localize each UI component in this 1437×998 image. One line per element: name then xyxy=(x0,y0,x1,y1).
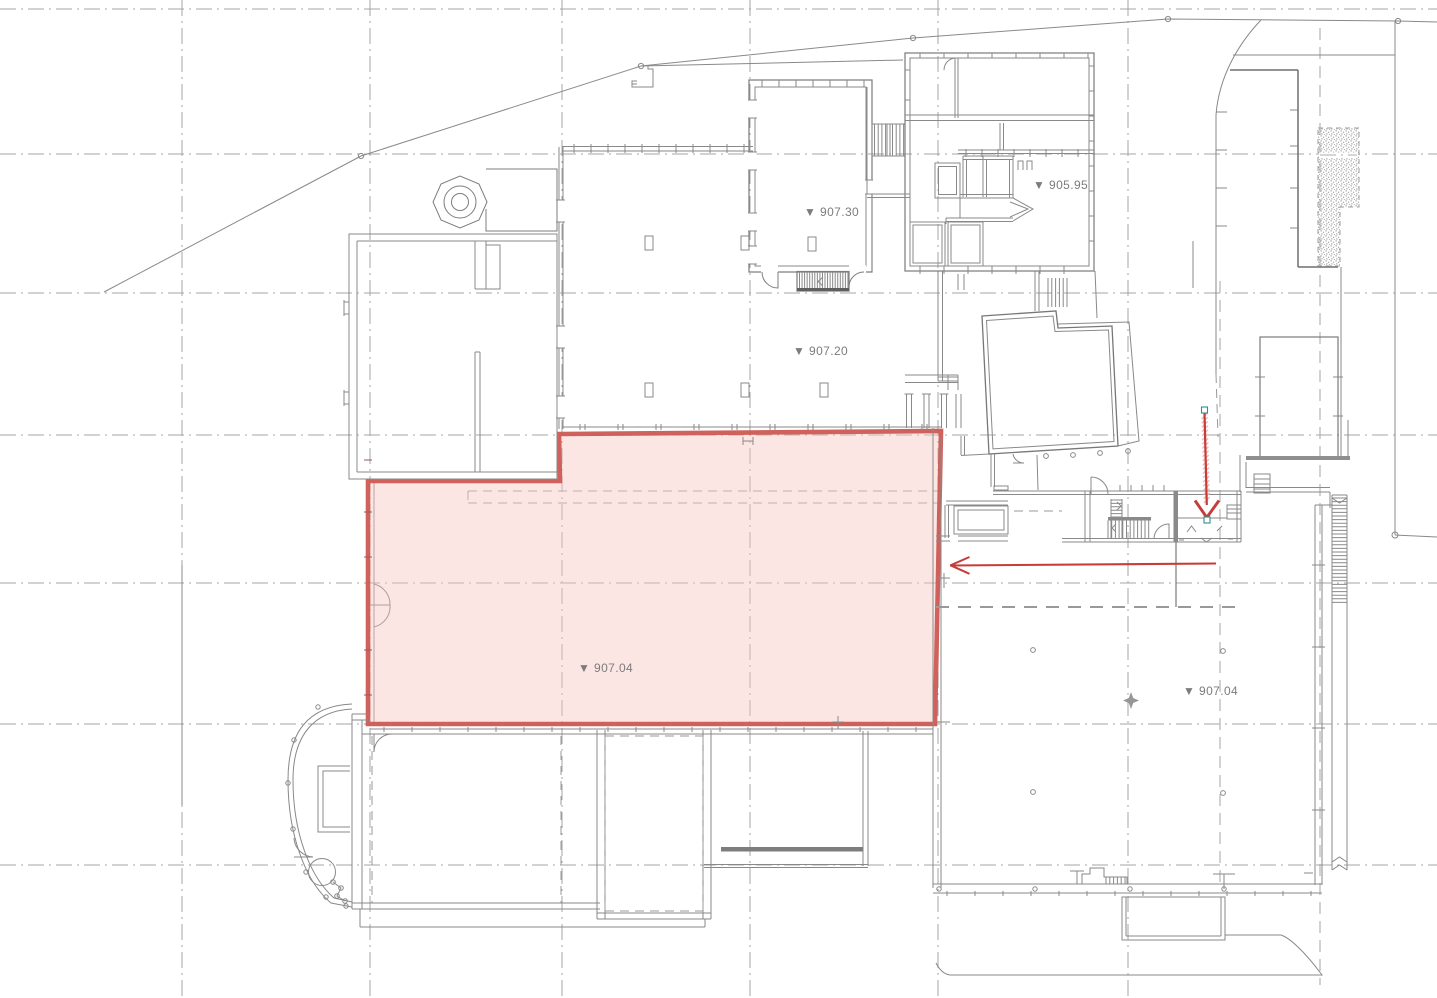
svg-text:▼ 907.20: ▼ 907.20 xyxy=(793,344,848,358)
svg-text:▼ 905.95: ▼ 905.95 xyxy=(1033,178,1088,192)
svg-text:▼ 907.04: ▼ 907.04 xyxy=(578,661,633,675)
svg-text:▼ 907.30: ▼ 907.30 xyxy=(804,205,859,219)
svg-text:▼ 907.04: ▼ 907.04 xyxy=(1183,684,1238,698)
